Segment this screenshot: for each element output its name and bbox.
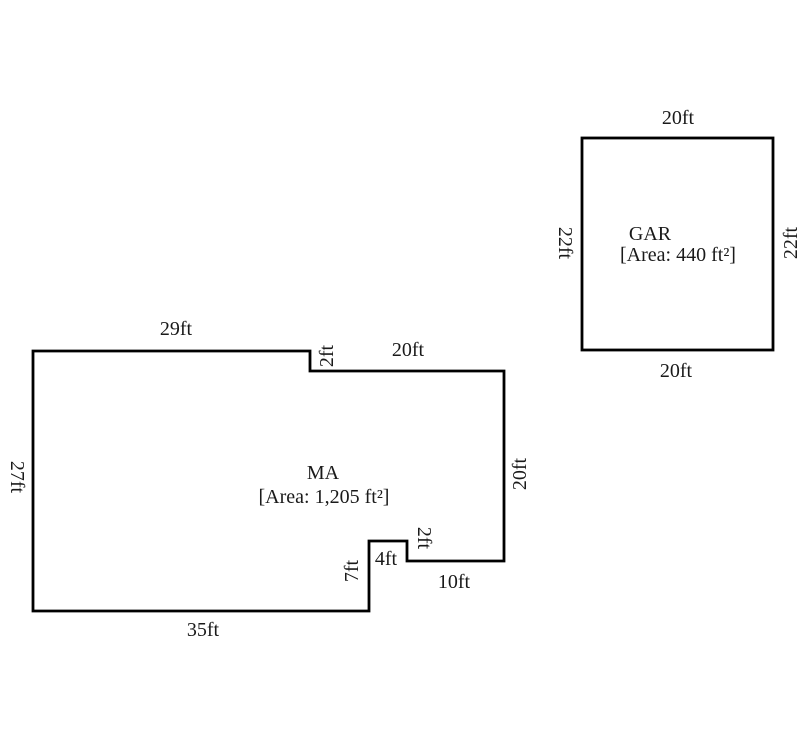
ma-dim-bottom-label: 35ft <box>187 620 219 640</box>
gar-dim-top-label: 20ft <box>662 108 694 128</box>
ma-room-outline <box>33 351 504 611</box>
ma-dim-notch-bottom-label: 10ft <box>438 572 470 592</box>
gar-dim-left-label: 22ft <box>555 227 575 259</box>
ma-room-name: MA <box>307 463 339 483</box>
ma-dim-left-label: 27ft <box>7 461 27 493</box>
ma-dim-notch-left-label: 7ft <box>342 560 362 582</box>
gar-room-area: [Area: 440 ft²] <box>620 245 736 265</box>
ma-dim-top2-label: 20ft <box>392 340 424 360</box>
gar-dim-right-label: 22ft <box>781 227 801 259</box>
ma-dim-top-label: 29ft <box>160 319 192 339</box>
floor-plan-canvas: MA [Area: 1,205 ft²] 29ft 2ft 20ft 20ft … <box>0 0 806 750</box>
ma-dim-step-label: 2ft <box>317 345 337 367</box>
gar-room-name: GAR <box>629 224 671 244</box>
ma-dim-notch-side-label: 2ft <box>414 527 434 549</box>
gar-dim-bottom-label: 20ft <box>660 361 692 381</box>
ma-dim-right-label: 20ft <box>510 458 530 490</box>
ma-room-area: [Area: 1,205 ft²] <box>259 487 390 507</box>
ma-dim-notch-top-label: 4ft <box>375 549 397 569</box>
